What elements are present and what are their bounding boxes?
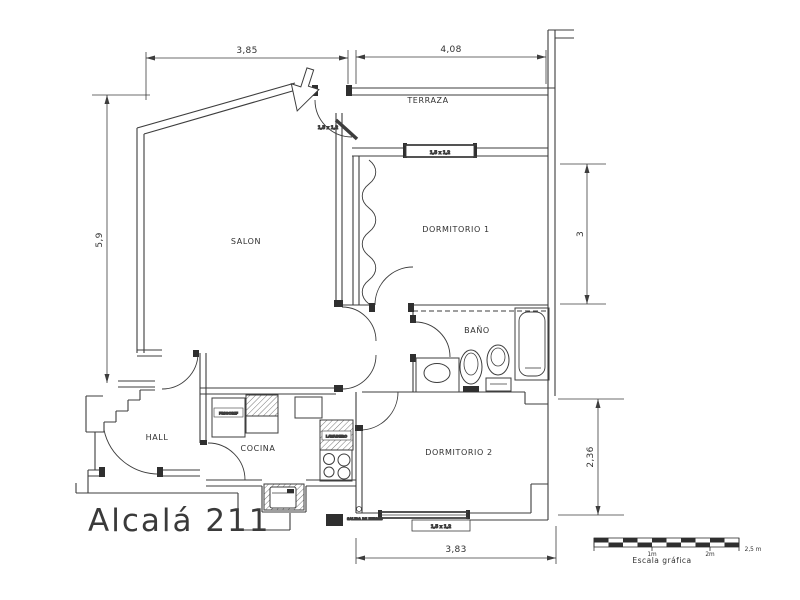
bathtub <box>515 308 549 380</box>
room-label-dormitorio1: DORMITORIO 1 <box>422 225 490 234</box>
terrace-door-tag: 1,5 x 1,2 <box>318 125 339 130</box>
fridge-label: FRIGORIF <box>219 412 239 416</box>
laundry-unit: LAVADERO <box>320 420 353 450</box>
dim-left-value: 5,9 <box>95 232 105 247</box>
toilet <box>486 345 511 391</box>
oven <box>295 397 322 418</box>
hall-salon-door-arc <box>162 353 198 389</box>
room-label-terraza: TERRAZA <box>406 96 448 105</box>
entrance-arrow-icon <box>284 65 324 115</box>
dim-right-lower-value: 2,36 <box>586 446 596 467</box>
dimension-right-upper: 3 <box>560 164 606 304</box>
dorm2-door-arc <box>360 392 398 430</box>
doors <box>104 100 450 480</box>
counter-hatched <box>246 395 278 416</box>
scale-bar-checker <box>594 538 739 547</box>
dim-top-right-value: 4,08 <box>440 45 461 55</box>
laundry-label: LAVADERO <box>326 435 347 439</box>
window-dorm2-tag: 1,5 x 1,2 <box>431 524 452 529</box>
window-dorm2: 1,5 x 1,2 <box>380 512 470 531</box>
salon-door-arc-upper <box>342 307 376 341</box>
dimension-top-right: 4,08 <box>356 45 546 84</box>
smoke-outlet-label: SALIDA DE HUMOS <box>347 517 383 521</box>
salon-door-arc-lower <box>342 355 376 389</box>
scale-tick-end: 2,5 m <box>745 547 762 553</box>
window-dorm1-tag: 1,5 x 1,2 <box>430 150 451 155</box>
floor-plan-drawing: 1,5 x 1,2 1,5 x 1,2 1,5 x 1,2 <box>0 0 800 600</box>
sink-basin <box>416 358 459 392</box>
cooktop <box>320 450 352 481</box>
scale-bar: 1m 2m 2,5 m Escala gráfica <box>594 538 762 565</box>
dimension-right-lower: 2,36 <box>558 399 624 515</box>
hall-cocina-door-arc <box>208 443 245 480</box>
smoke-vent-box <box>326 514 343 526</box>
room-label-bano: BAÑO <box>464 325 490 335</box>
bidet <box>460 350 482 392</box>
fridge: FRIGORIF <box>212 398 245 437</box>
room-label-cocina: COCINA <box>241 444 276 453</box>
smoke-outlet-symbol <box>357 507 362 512</box>
room-label-dormitorio2: DORMITORIO 2 <box>425 448 493 457</box>
bath-door-arc <box>415 322 450 357</box>
dim-top-left-value: 3,85 <box>236 46 257 56</box>
room-label-hall: HALL <box>146 433 169 442</box>
dimension-bottom: 3,83 <box>356 526 556 564</box>
terrace-door-leaf <box>336 120 357 139</box>
dimension-left: 5,9 <box>92 95 150 383</box>
project-title: Alcalá 211 <box>88 503 271 539</box>
window-dorm1: 1,5 x 1,2 <box>404 145 477 157</box>
room-label-salon: SALON <box>231 237 261 246</box>
curtain-squiggle <box>362 160 376 304</box>
scale-tick-2m: 2m <box>705 552 715 558</box>
dim-right-upper-value: 3 <box>576 231 586 237</box>
dorm1-door-arc <box>375 267 413 305</box>
floor-plan-page: 1,5 x 1,2 1,5 x 1,2 1,5 x 1,2 <box>0 0 800 600</box>
bath-fixtures <box>416 308 549 392</box>
scale-bar-title: Escala gráfica <box>632 556 691 565</box>
dim-bottom-value: 3,83 <box>445 545 466 555</box>
entry-steps <box>95 390 155 432</box>
counter-cabinet <box>246 416 278 433</box>
